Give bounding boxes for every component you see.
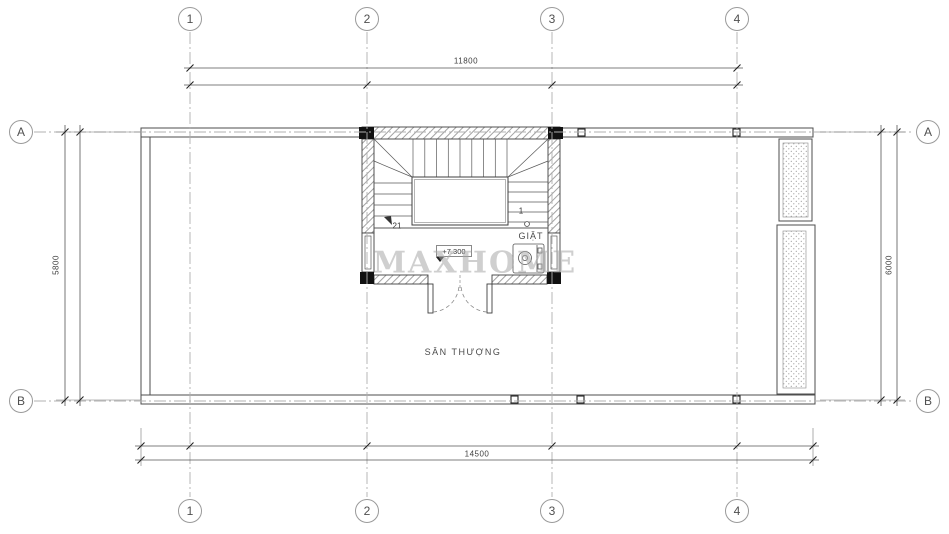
- stair-step-21-label: 21: [393, 222, 402, 231]
- door-swing-left: [433, 286, 459, 312]
- room-label-terrace: SÂN THƯỢNG: [425, 347, 502, 357]
- grid-bubble-col-3-bottom: 3: [540, 499, 564, 523]
- grid-bubble-row-b-left: B: [9, 389, 33, 413]
- dimension-left-overall: 5800: [52, 255, 61, 275]
- door-swing-right: [461, 286, 487, 312]
- grid-bubble-row-a-right: A: [916, 120, 940, 144]
- dimension-right-overall: 6000: [885, 255, 894, 275]
- dimension-bottom-overall: 14500: [465, 450, 490, 459]
- grid-bubble-col-4-bottom: 4: [725, 499, 749, 523]
- grid-bubble-col-2-bottom: 2: [355, 499, 379, 523]
- grid-bubble-col-1-bottom: 1: [178, 499, 202, 523]
- landing-door: [428, 275, 492, 313]
- grid-bubble-col-3-top: 3: [540, 7, 564, 31]
- room-label-laundry: GIẶT: [518, 231, 543, 241]
- grid-bubble-col-2-top: 2: [355, 7, 379, 31]
- grid-bubble-row-b-right: B: [916, 389, 940, 413]
- dimension-top-overall: 11800: [454, 57, 478, 66]
- stair-well: [412, 177, 508, 225]
- grid-bubble-row-a-left: A: [9, 120, 33, 144]
- door-leaf-right: [487, 284, 492, 313]
- maxhome-watermark: MAXHOME: [373, 246, 577, 281]
- stair-arrow-head: [384, 216, 392, 225]
- floor-plan-sheet: 1 2 3 4 1 2 3 4 A B A B 11800 14500 5800…: [0, 0, 949, 534]
- grid-bubble-col-4-top: 4: [725, 7, 749, 31]
- door-leaf-left: [428, 284, 433, 313]
- louver-panel-upper: [779, 139, 812, 221]
- stair-start-marker: [525, 222, 530, 227]
- stair-step-1-label: 1: [519, 207, 523, 216]
- grid-bubble-col-1-top: 1: [178, 7, 202, 31]
- louver-panel-lower: [777, 225, 815, 394]
